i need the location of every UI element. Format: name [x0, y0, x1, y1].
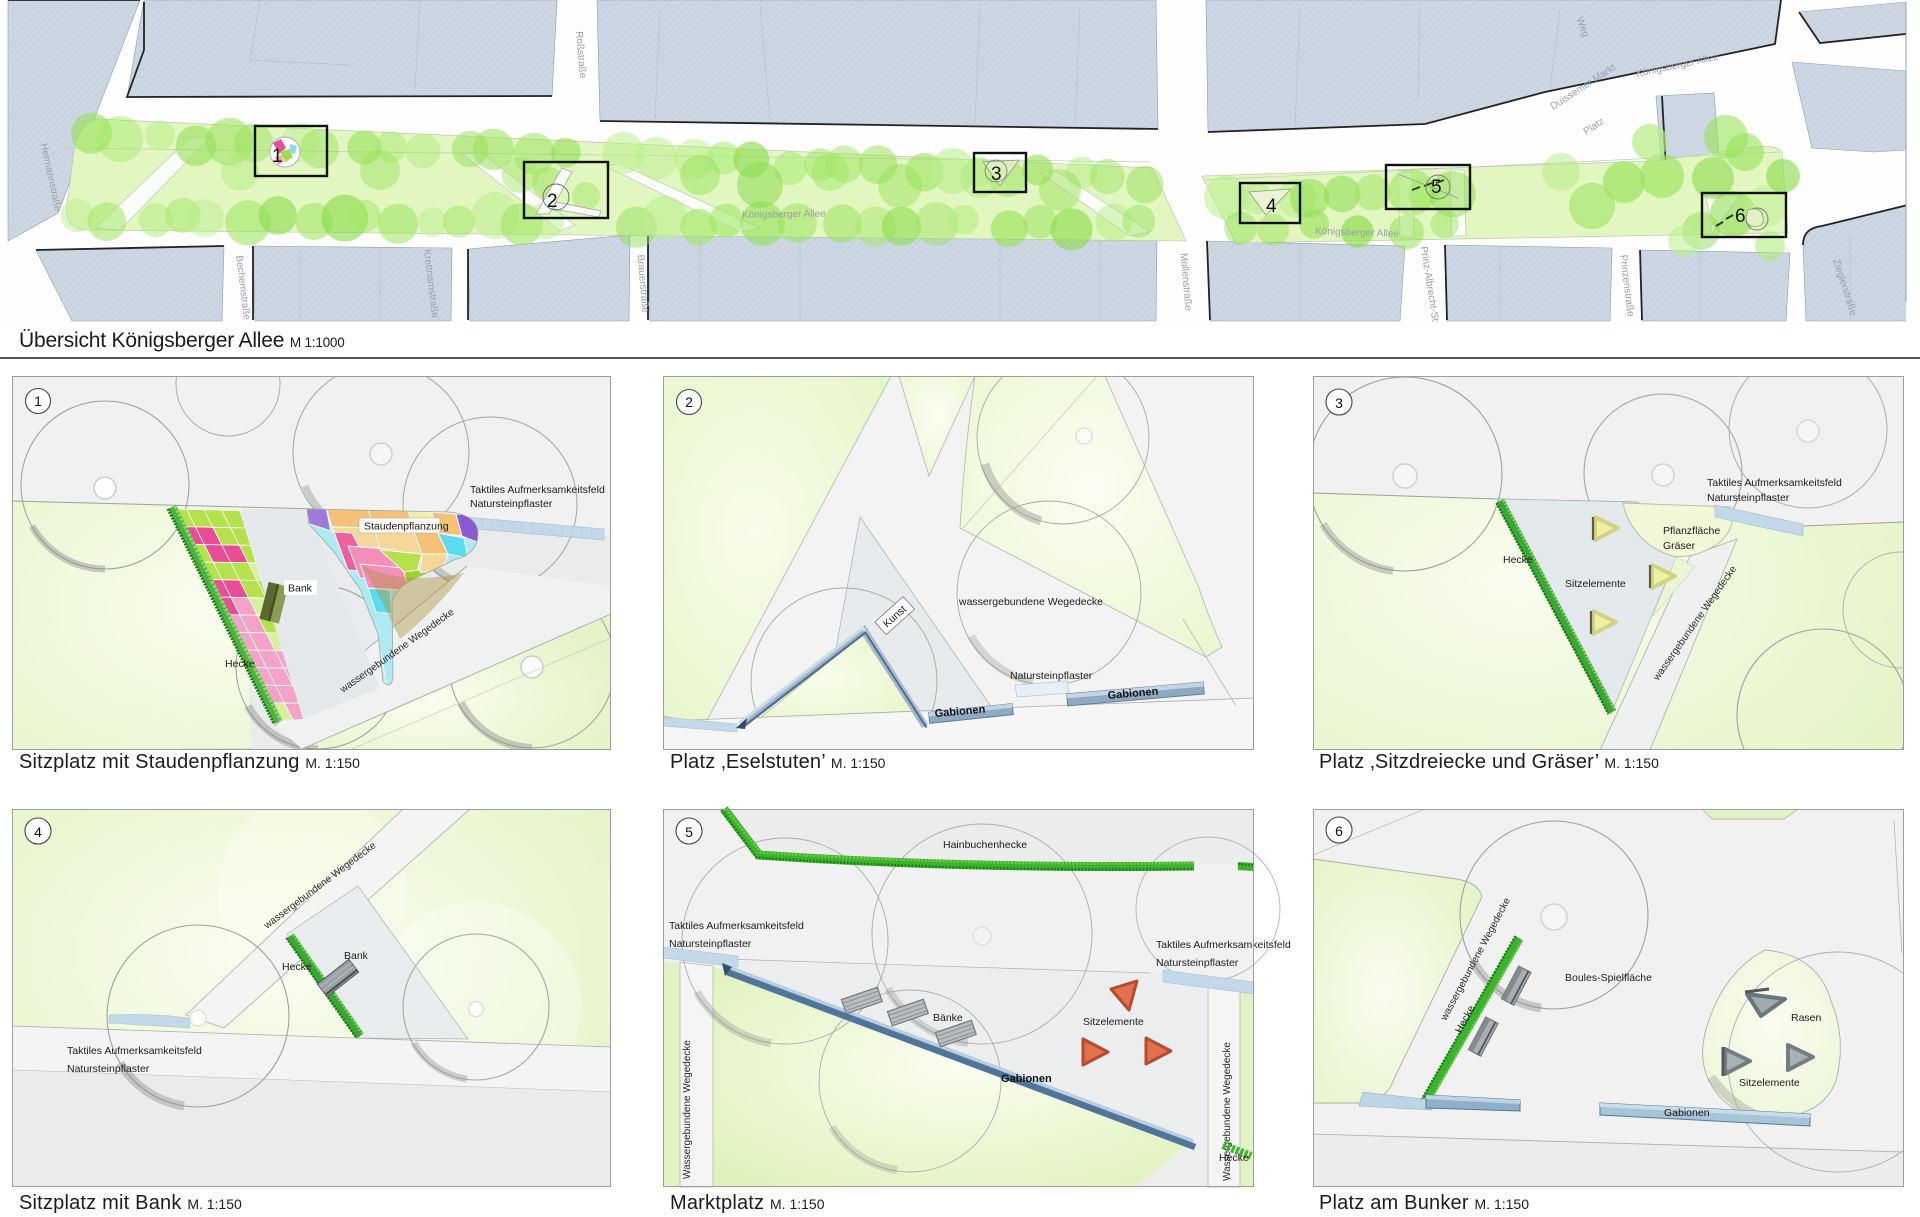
svg-text:Wassergebundene Wegedecke: Wassergebundene Wegedecke	[682, 1040, 693, 1179]
svg-text:Bänke: Bänke	[933, 1012, 963, 1024]
svg-text:5: 5	[1431, 177, 1442, 198]
svg-text:Taktiles Aufmerksamkeitsfeld: Taktiles Aufmerksamkeitsfeld	[67, 1045, 202, 1057]
svg-text:1: 1	[34, 393, 42, 409]
svg-text:Königsberger Allee: Königsberger Allee	[742, 209, 827, 221]
svg-text:Bank: Bank	[288, 583, 313, 595]
svg-text:2: 2	[685, 394, 693, 410]
svg-text:5: 5	[685, 824, 693, 840]
svg-text:Gräser: Gräser	[1663, 540, 1696, 552]
svg-text:Taktiles Aufmerksamkeitsfeld: Taktiles Aufmerksamkeitsfeld	[669, 920, 804, 932]
svg-text:6: 6	[1735, 206, 1746, 227]
svg-text:Bank: Bank	[344, 950, 369, 962]
svg-text:Sitzelemente: Sitzelemente	[1739, 1077, 1800, 1089]
svg-text:Hainbuchenhecke: Hainbuchenhecke	[943, 839, 1027, 851]
svg-text:Boules-Spielfläche: Boules-Spielfläche	[1565, 972, 1652, 984]
svg-text:Natursteinpflaster: Natursteinpflaster	[1010, 670, 1093, 682]
svg-text:Natursteinpflaster: Natursteinpflaster	[470, 498, 553, 510]
svg-text:wassergebundene Wegedecke: wassergebundene Wegedecke	[958, 596, 1103, 608]
svg-text:Gabionen: Gabionen	[1664, 1107, 1710, 1119]
svg-text:Natursteinpflaster: Natursteinpflaster	[669, 938, 752, 950]
svg-text:Pflanzfläche: Pflanzfläche	[1663, 525, 1720, 537]
svg-text:Taktiles Aufmerksamkeitsfeld: Taktiles Aufmerksamkeitsfeld	[1156, 939, 1291, 951]
svg-text:Hecke: Hecke	[225, 658, 255, 670]
svg-text:Sitzelemente: Sitzelemente	[1565, 578, 1626, 590]
svg-text:Natursteinpflaster: Natursteinpflaster	[1156, 957, 1239, 969]
svg-text:Taktiles Aufmerksamkeitsfeld: Taktiles Aufmerksamkeitsfeld	[470, 484, 605, 496]
svg-text:Sitzelemente: Sitzelemente	[1083, 1016, 1144, 1028]
svg-text:4: 4	[1266, 196, 1277, 217]
svg-text:Gabionen: Gabionen	[1001, 1073, 1052, 1085]
svg-text:1: 1	[272, 146, 283, 167]
svg-text:Hecke: Hecke	[1219, 1152, 1249, 1164]
svg-text:Natursteinpflaster: Natursteinpflaster	[67, 1063, 150, 1075]
svg-text:Natursteinpflaster: Natursteinpflaster	[1707, 492, 1790, 504]
svg-text:6: 6	[1335, 823, 1343, 839]
svg-text:Taktiles Aufmerksamkeitsfeld: Taktiles Aufmerksamkeitsfeld	[1707, 477, 1842, 489]
svg-text:Staudenpflanzung: Staudenpflanzung	[364, 521, 449, 533]
svg-text:Hecke: Hecke	[1503, 554, 1533, 566]
svg-text:2: 2	[547, 191, 558, 212]
svg-text:3: 3	[991, 164, 1002, 185]
svg-text:Rasen: Rasen	[1791, 1012, 1822, 1024]
svg-text:4: 4	[34, 824, 42, 840]
svg-text:3: 3	[1335, 395, 1343, 411]
svg-text:Hecke: Hecke	[282, 961, 312, 973]
